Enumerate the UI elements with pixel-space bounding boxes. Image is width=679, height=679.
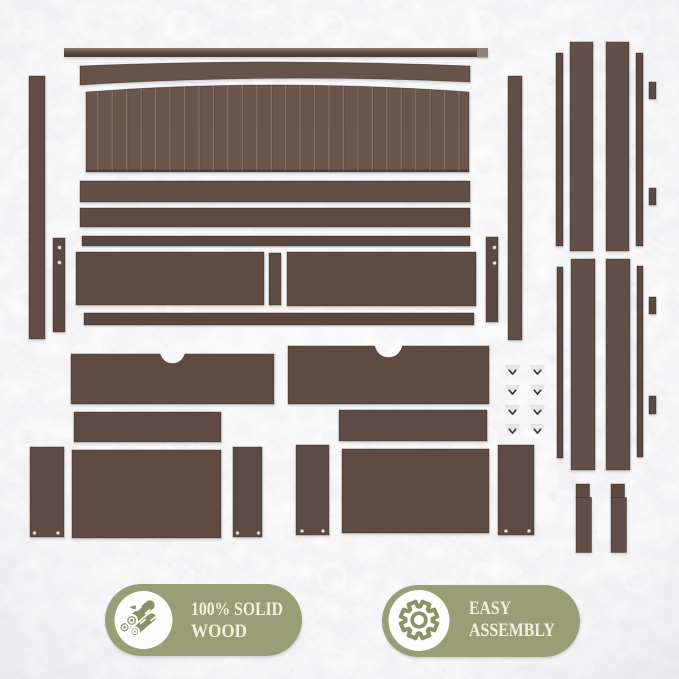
- svg-text:EASY: EASY: [469, 598, 511, 619]
- svg-text:WOOD: WOOD: [191, 621, 247, 642]
- svg-text:ASSEMBLY: ASSEMBLY: [469, 620, 555, 641]
- svg-text:100% SOLID: 100% SOLID: [191, 599, 283, 620]
